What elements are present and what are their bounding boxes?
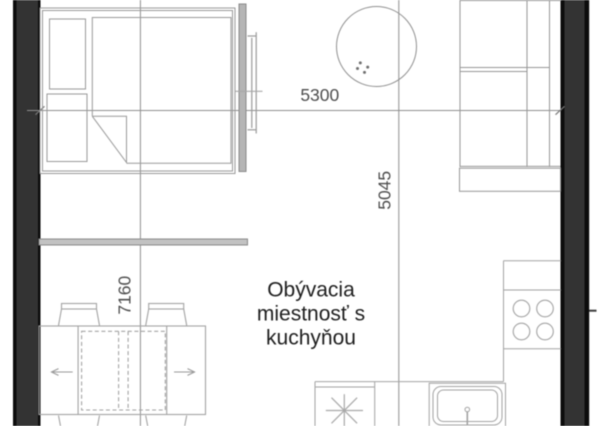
svg-text:5300: 5300 (300, 85, 339, 105)
svg-text:kuchyňou: kuchyňou (266, 327, 356, 350)
svg-text:7160: 7160 (115, 275, 135, 314)
svg-text:miestnosť s: miestnosť s (257, 303, 365, 326)
svg-text:Obývacia: Obývacia (267, 279, 355, 302)
svg-text:5045: 5045 (375, 171, 395, 210)
